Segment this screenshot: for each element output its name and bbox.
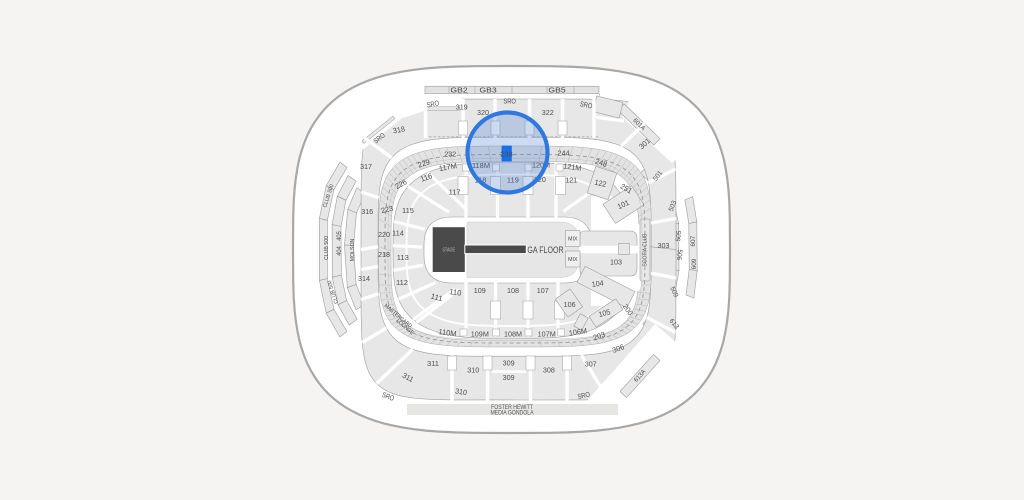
svg-text:314: 314 [358,274,370,283]
svg-text:117: 117 [449,187,461,196]
svg-text:GA FLOOR: GA FLOOR [527,245,563,256]
svg-text:113: 113 [397,253,409,262]
svg-text:244: 244 [558,149,570,158]
svg-text:609: 609 [691,258,698,269]
svg-text:SRO: SRO [503,96,516,105]
svg-text:310: 310 [467,366,479,375]
svg-text:MIX: MIX [568,257,578,263]
svg-text:107: 107 [537,286,549,295]
svg-text:220: 220 [378,230,390,239]
svg-text:108M: 108M [504,330,522,339]
svg-text:MEDIA GONDOLA: MEDIA GONDOLA [490,411,533,417]
svg-text:316: 316 [361,207,373,216]
svg-text:GB3: GB3 [479,86,496,95]
svg-text:107M: 107M [538,330,556,339]
svg-text:319: 319 [456,103,468,112]
svg-text:317: 317 [360,162,372,171]
svg-text:308: 308 [543,366,555,375]
svg-text:112: 112 [396,278,408,287]
svg-text:114: 114 [392,229,404,238]
svg-text:STAGE: STAGE [442,247,455,253]
svg-text:GB5: GB5 [548,86,565,95]
svg-text:303: 303 [658,241,670,250]
svg-text:506: 506 [675,249,683,261]
svg-text:109: 109 [474,286,486,295]
svg-text:110: 110 [449,287,462,298]
svg-text:GB2: GB2 [450,86,467,95]
svg-text:607: 607 [690,236,697,247]
svg-text:238: 238 [500,150,513,159]
svg-text:232: 232 [444,150,456,159]
svg-text:405: 405 [337,231,343,241]
svg-text:106: 106 [564,300,576,309]
svg-text:103: 103 [610,258,622,267]
svg-text:CLUB 500: CLUB 500 [324,236,330,260]
svg-text:309: 309 [503,373,515,382]
svg-text:505: 505 [675,230,683,242]
svg-text:SCOTIA CLUB: SCOTIA CLUB [642,233,648,266]
svg-text:MOLSON: MOLSON [350,239,356,262]
svg-text:104: 104 [591,278,604,289]
svg-text:218: 218 [378,250,390,259]
svg-text:108: 108 [507,286,519,295]
svg-text:121: 121 [565,176,577,185]
svg-text:309: 309 [503,359,515,368]
svg-text:311: 311 [427,359,439,368]
svg-text:404: 404 [337,246,343,256]
svg-text:322: 322 [542,108,554,117]
svg-text:MIX: MIX [568,236,578,242]
svg-text:109M: 109M [471,330,489,339]
svg-text:115: 115 [402,206,414,215]
svg-text:307: 307 [585,360,597,369]
